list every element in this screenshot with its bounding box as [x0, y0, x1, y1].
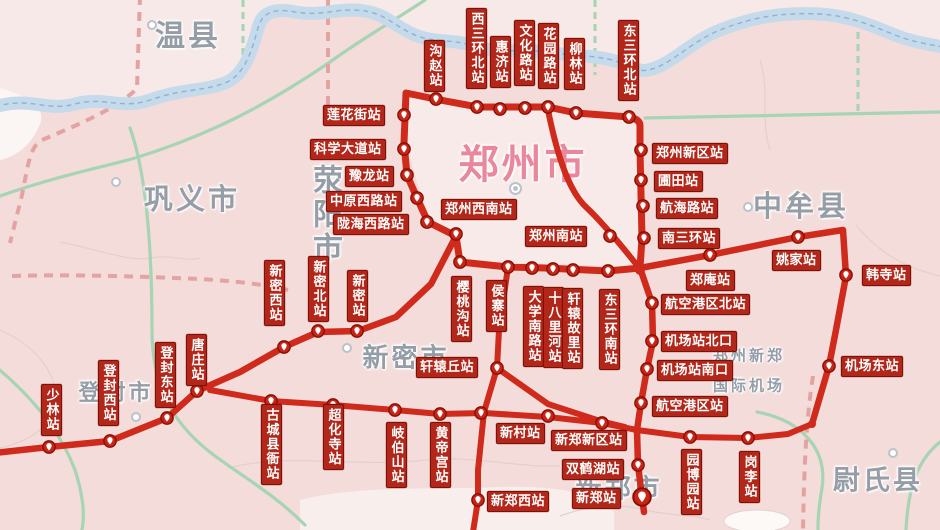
station-marker [490, 361, 504, 375]
station-marker [741, 431, 755, 445]
station-marker [634, 396, 648, 410]
station-marker [397, 108, 411, 122]
station-marker [603, 229, 617, 243]
station-label: 唐庄站 [186, 334, 207, 386]
station-label: 轩辕故里站 [562, 288, 583, 369]
station-label: 西三环北站 [466, 8, 487, 89]
station-label: 侯寨站 [486, 280, 507, 332]
station-marker [546, 262, 560, 276]
station-label: 郑州西南站 [441, 199, 517, 220]
station-marker [683, 430, 697, 444]
station-label: 岐伯山站 [386, 422, 407, 488]
station-label: 中原西路站 [326, 191, 402, 212]
station-label: 东三环南站 [599, 289, 620, 370]
station-marker [601, 264, 615, 278]
station-label: 大学南路站 [523, 286, 544, 367]
station-marker [839, 268, 853, 282]
station-label: 文化路站 [514, 20, 535, 86]
station-marker [501, 260, 515, 274]
station-label: 惠济站 [490, 36, 511, 88]
station-marker [42, 440, 56, 454]
station-label: 航空港区北站 [661, 294, 750, 315]
station-marker [518, 101, 532, 115]
station-label: 机场站北口 [661, 331, 737, 352]
station-label: 科学大道站 [310, 139, 386, 160]
station-marker [703, 248, 717, 262]
station-marker [622, 110, 636, 124]
station-marker [277, 340, 291, 354]
station-label: 新密站 [347, 270, 368, 322]
station-label: 新密北站 [308, 256, 329, 322]
station-label: 沟赵站 [424, 40, 445, 92]
station-marker [569, 106, 583, 120]
station-marker [493, 102, 507, 116]
station-label: 园博园站 [681, 449, 702, 515]
station-label: 机场站南口 [657, 360, 733, 381]
station-marker [103, 434, 117, 448]
station-label: 姚家站 [772, 250, 821, 271]
station-label: 新郑站 [572, 488, 621, 509]
station-marker [433, 407, 447, 421]
station-label: 超化寺站 [323, 404, 344, 470]
station-label: 东三环北站 [618, 20, 639, 101]
station-marker [595, 416, 609, 430]
station-label: 航海路站 [656, 198, 718, 219]
station-label: 圃田站 [654, 171, 703, 192]
station-marker [453, 255, 467, 269]
station-label: 少林站 [41, 384, 62, 436]
station-marker [311, 324, 325, 338]
station-label: 机场东站 [841, 356, 903, 377]
station-label: 南三环站 [658, 228, 720, 249]
station-label: 樱桃沟站 [451, 276, 472, 342]
station-marker [640, 362, 654, 376]
station-label: 十八里河站 [543, 287, 564, 368]
station-marker [471, 493, 485, 507]
station-label: 登封西站 [98, 360, 119, 426]
station-marker [449, 227, 463, 241]
station-label: 花园路站 [538, 23, 559, 89]
station-label: 双鹤湖站 [562, 459, 624, 480]
station-label: 莲花街站 [323, 105, 385, 126]
station-label: 陇海西路站 [333, 214, 409, 235]
station-marker [350, 324, 364, 338]
station-marker [400, 168, 414, 182]
station-marker [645, 296, 659, 310]
station-label: 登封东站 [155, 342, 176, 408]
station-label: 古城县衙站 [261, 404, 282, 485]
station-marker [397, 142, 411, 156]
station-marker [474, 406, 488, 420]
station-marker [631, 458, 645, 472]
station-marker [420, 215, 434, 229]
station-label: 轩辕丘站 [416, 357, 478, 378]
station-marker [541, 409, 555, 423]
station-label: 柳林站 [564, 38, 585, 90]
station-marker [634, 143, 648, 157]
station-marker [525, 261, 539, 275]
rail-ring-line [404, 93, 642, 271]
map-canvas: 温县巩义市荥阳市郑州市中牟县登封市新密市新郑市尉氏县郑州新郑国际机场✈沟赵站西三… [0, 0, 940, 530]
station-marker [634, 173, 648, 187]
station-label: 郑州新区站 [652, 143, 728, 164]
station-marker [566, 263, 580, 277]
station-marker [190, 384, 204, 398]
station-label: 黄帝宫站 [430, 422, 451, 488]
station-label: 航空港区站 [652, 396, 728, 417]
rail-southwest-line [0, 236, 456, 453]
station-label: 新郑西站 [487, 491, 549, 512]
station-marker [429, 92, 443, 106]
station-marker [645, 334, 659, 348]
station-label: 新村站 [496, 423, 545, 444]
station-label: 新郑新区站 [551, 430, 627, 451]
station-label: 新密西站 [264, 260, 285, 326]
station-marker [636, 199, 650, 213]
station-marker [632, 487, 652, 507]
station-label: 岗李站 [739, 451, 760, 503]
station-marker [822, 359, 836, 373]
station-marker [410, 191, 424, 205]
station-label: 豫龙站 [345, 166, 394, 187]
station-marker [160, 411, 174, 425]
station-label: 韩寺站 [862, 265, 911, 286]
station-label: 郑州南站 [525, 226, 587, 247]
station-marker [388, 403, 402, 417]
station-marker [637, 231, 651, 245]
station-marker [791, 230, 805, 244]
station-marker [470, 100, 484, 114]
station-label: 郑庵站 [686, 270, 735, 291]
station-marker [541, 100, 555, 114]
